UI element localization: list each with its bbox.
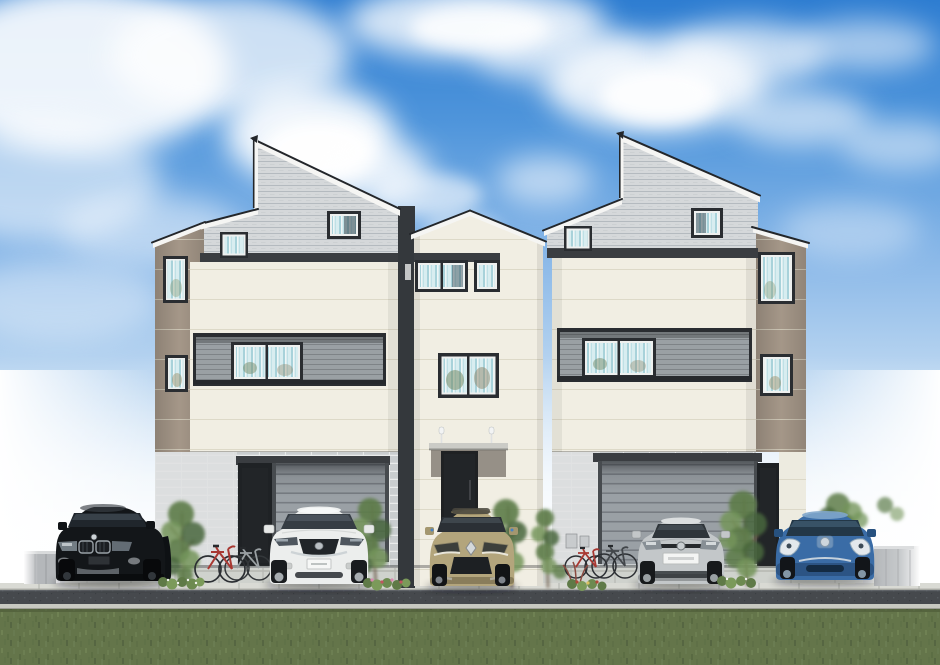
left-house-wing-window-lower bbox=[165, 355, 188, 392]
side-mirror bbox=[58, 522, 67, 530]
side-mirror bbox=[264, 525, 274, 533]
right-house-wing-window-upper bbox=[758, 252, 795, 304]
right-house-balcony bbox=[557, 328, 752, 382]
middle-house-top-window-narrow bbox=[474, 260, 500, 292]
side-mirror bbox=[632, 531, 641, 538]
road-far-edge bbox=[0, 604, 940, 609]
left-boundary-wall bbox=[24, 551, 56, 584]
left-house-gable-window bbox=[327, 211, 361, 239]
mazda-badge bbox=[315, 543, 323, 550]
side-mirror bbox=[509, 527, 518, 535]
fog-light bbox=[128, 558, 140, 565]
side-mirror bbox=[721, 531, 730, 538]
right-house-balcony-window bbox=[582, 338, 656, 378]
side-mirror bbox=[146, 521, 155, 529]
kidney-grille bbox=[79, 541, 93, 553]
left-house-side-wall bbox=[398, 206, 415, 588]
panoramic-roof bbox=[452, 508, 490, 514]
right-house-lintel bbox=[593, 453, 762, 462]
right-house-gable-window bbox=[691, 208, 723, 238]
left-house-wing-window-upper bbox=[163, 256, 188, 303]
balcony-rail bbox=[193, 380, 386, 384]
vw-badge bbox=[677, 542, 685, 550]
left-house-balcony-window bbox=[231, 342, 303, 382]
license-plate bbox=[88, 556, 110, 565]
right-boundary-wall bbox=[874, 546, 920, 586]
left-house-gable-window-small bbox=[220, 232, 248, 258]
lower-grille bbox=[450, 557, 492, 574]
side-mirror bbox=[364, 525, 374, 533]
right-house-secondary-gable-window bbox=[564, 226, 592, 251]
nissan-badge bbox=[821, 538, 830, 547]
middle-house-mid-window bbox=[438, 353, 499, 398]
kidney-grille bbox=[96, 541, 110, 553]
townhouse-scene bbox=[0, 0, 940, 665]
headlight bbox=[112, 541, 132, 551]
balcony-rail bbox=[557, 376, 752, 380]
bmw-badge bbox=[91, 534, 97, 540]
rendering-canvas bbox=[0, 0, 940, 665]
middle-house-top-window-wide bbox=[415, 260, 468, 292]
right-house-wing-window-lower bbox=[760, 354, 793, 396]
side-mirror bbox=[774, 529, 783, 537]
side-mirror bbox=[867, 529, 876, 537]
left-house-balcony bbox=[193, 333, 386, 386]
